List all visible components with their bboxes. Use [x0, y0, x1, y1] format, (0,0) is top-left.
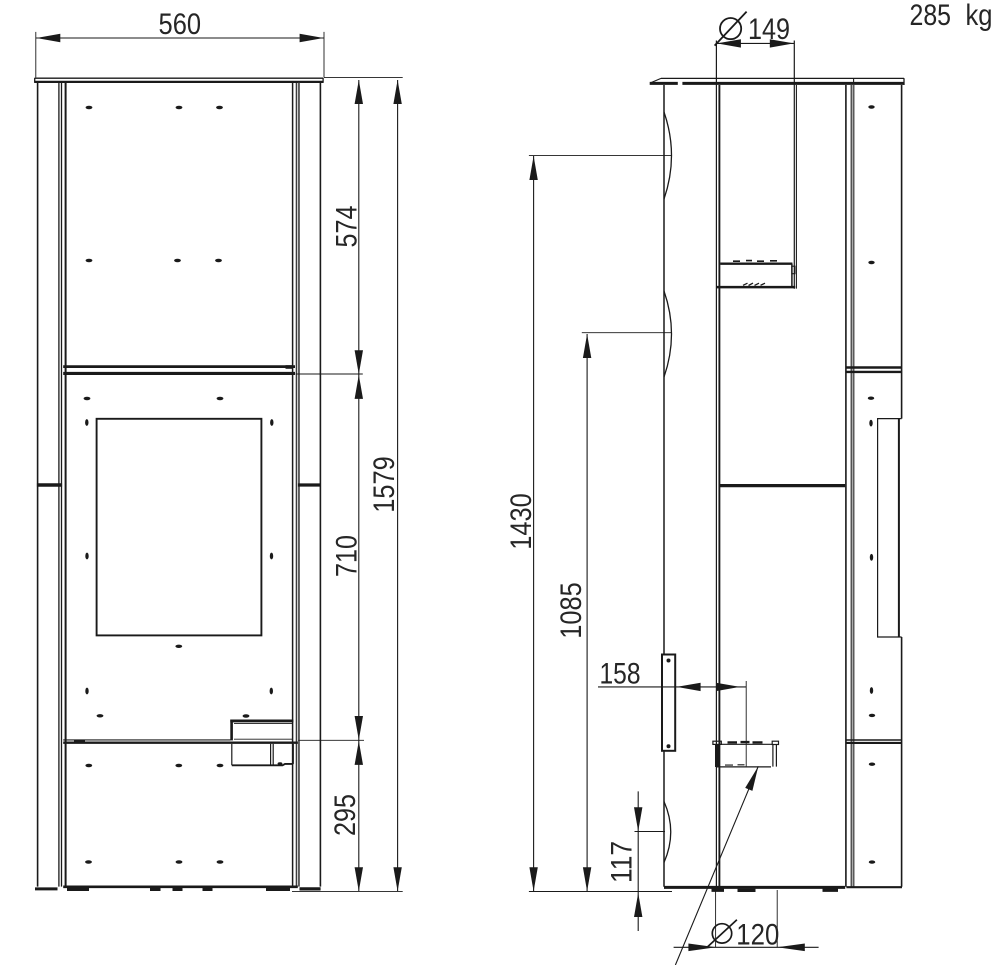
- svg-text:149: 149: [748, 13, 790, 46]
- svg-text:158: 158: [600, 658, 641, 691]
- svg-text:560: 560: [159, 8, 202, 41]
- svg-text:574: 574: [331, 206, 364, 248]
- svg-text:117: 117: [606, 841, 639, 883]
- svg-text:285: 285: [910, 0, 952, 32]
- svg-text:1085: 1085: [555, 582, 588, 639]
- svg-text:710: 710: [331, 535, 364, 577]
- svg-text:1430: 1430: [505, 493, 538, 550]
- svg-text:295: 295: [329, 794, 362, 836]
- svg-text:120: 120: [736, 919, 779, 952]
- svg-text:1579: 1579: [368, 456, 401, 513]
- svg-text:kg: kg: [966, 0, 993, 32]
